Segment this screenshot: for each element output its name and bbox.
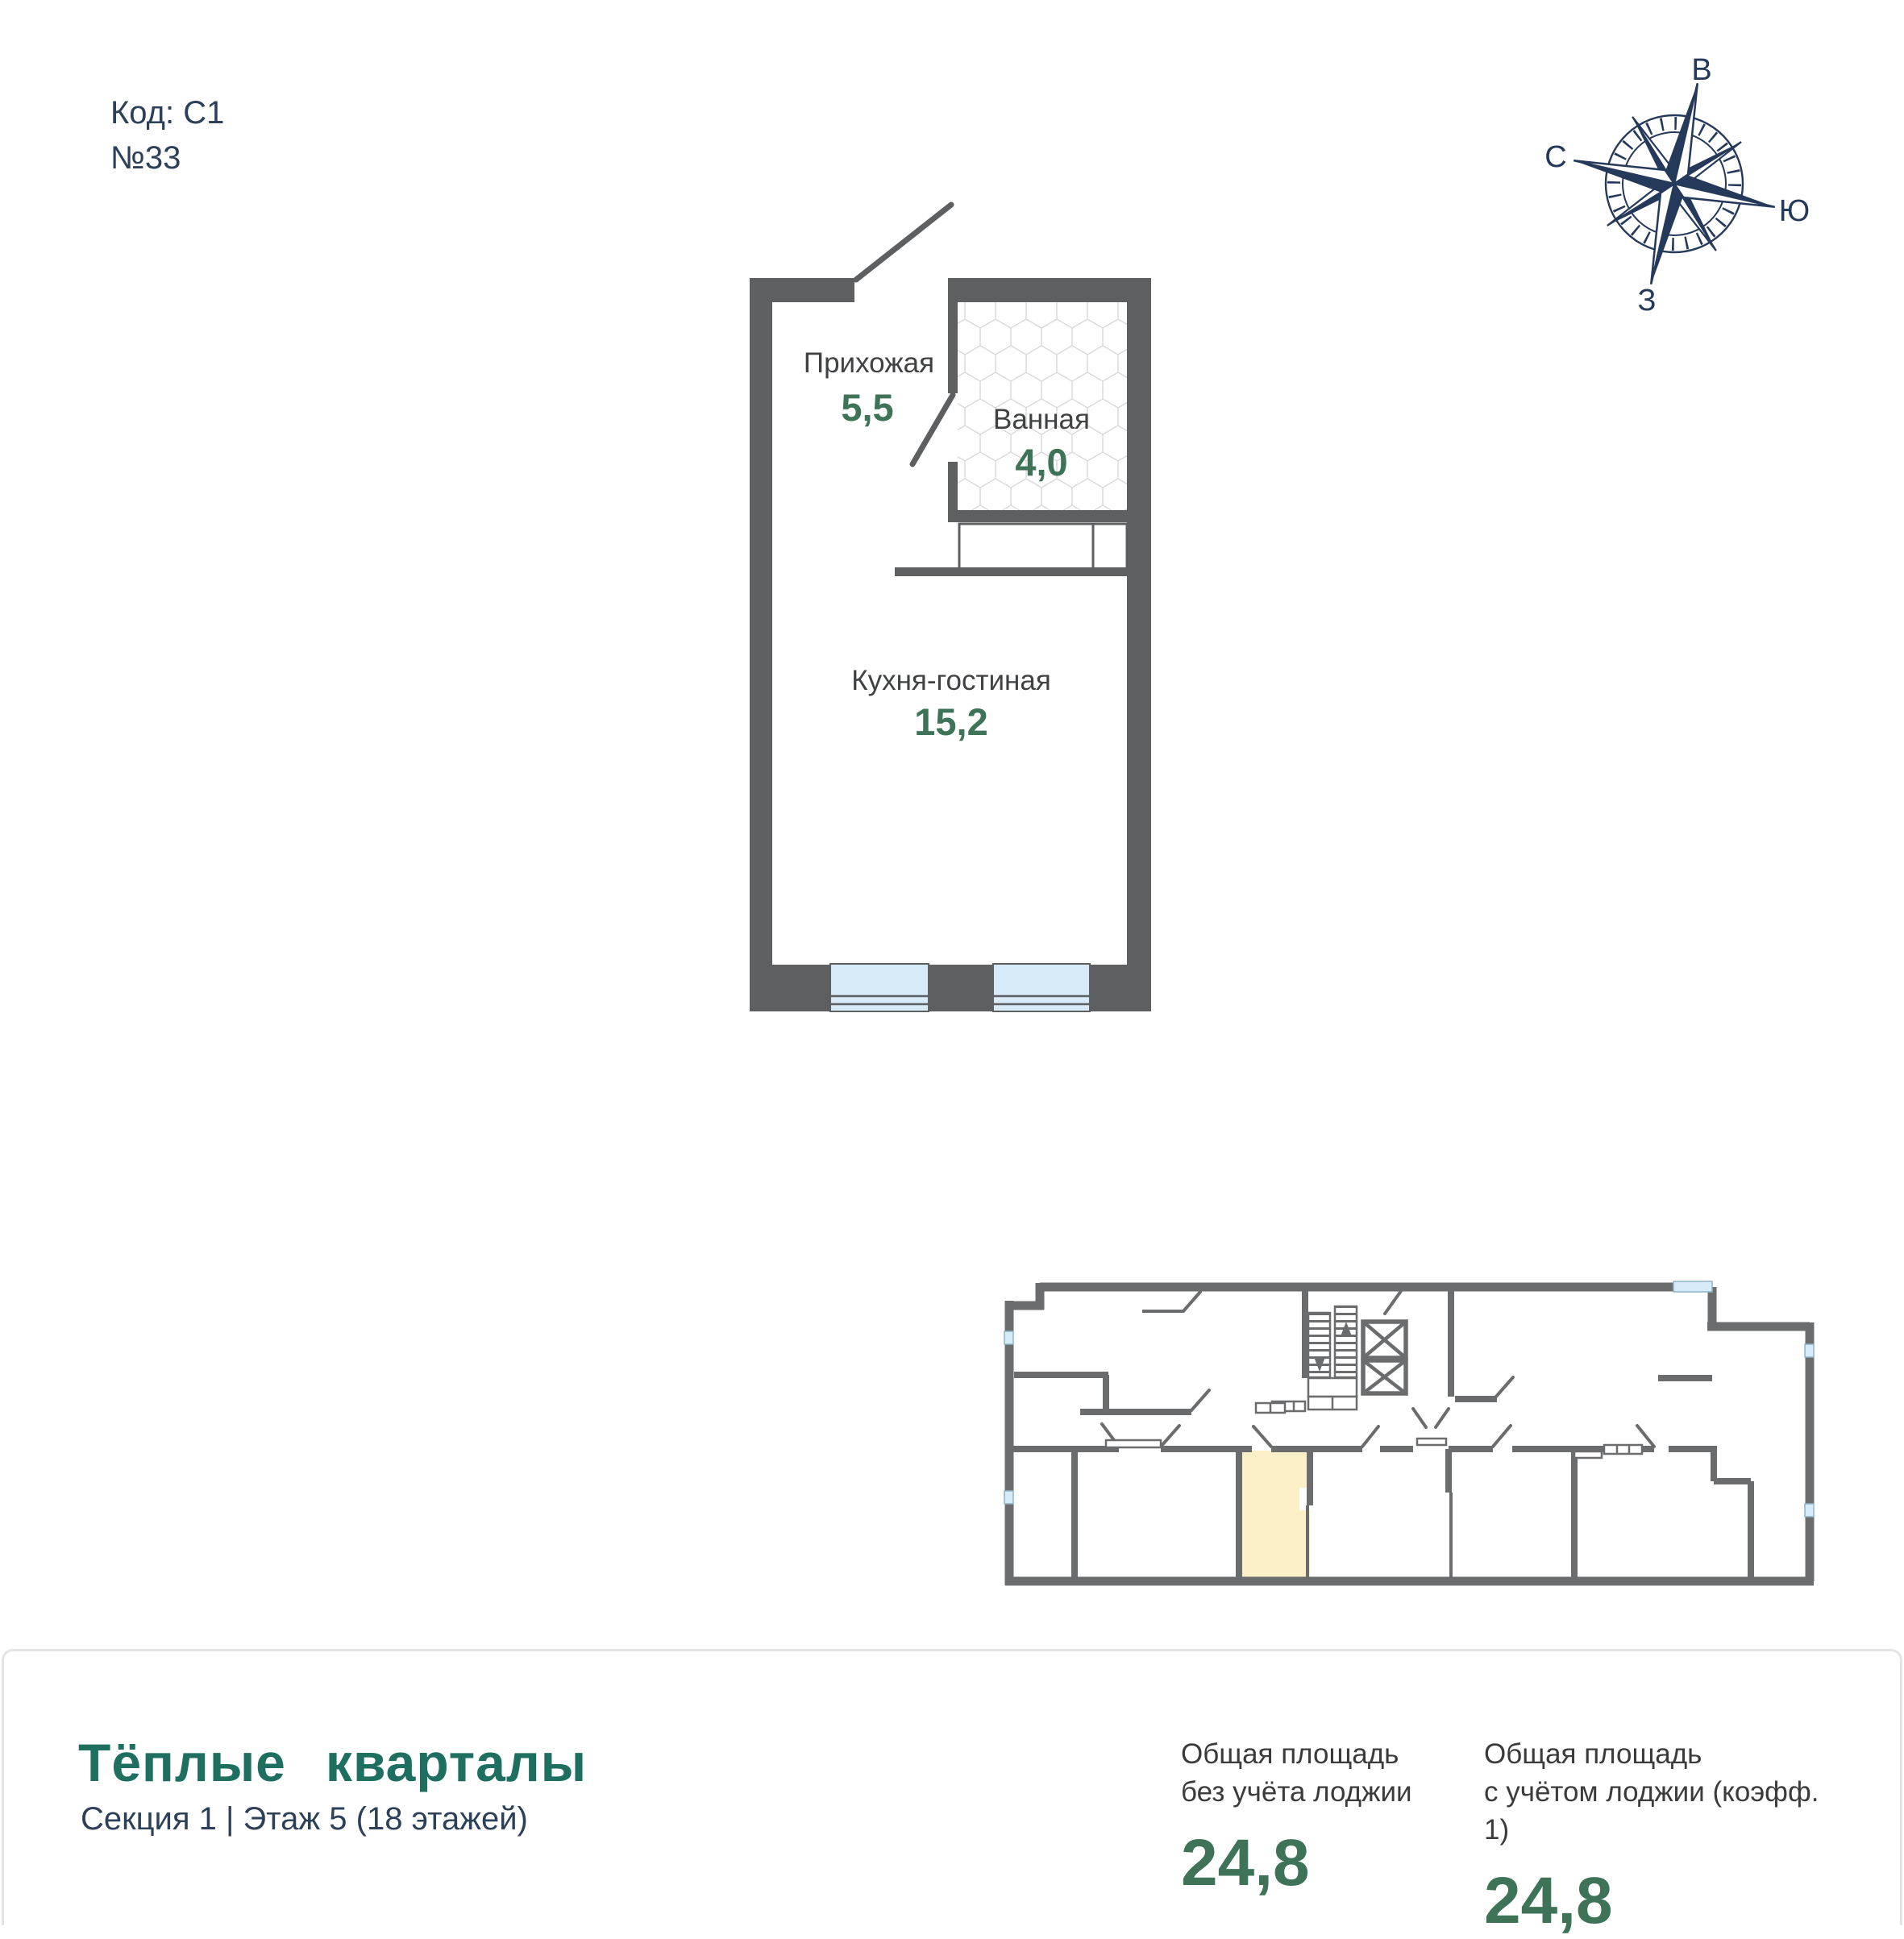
stat-value: 24,8 [1181, 1825, 1519, 1901]
stat-total-area: Общая площадь без учёта лоджии 24,8 [1181, 1735, 1519, 1901]
stat-label-line1: Общая площадь [1484, 1735, 1823, 1773]
window-right [993, 964, 1090, 1011]
overview-windows [1004, 1281, 1814, 1517]
brand-logo: Тёплые кварталы [78, 1732, 587, 1793]
bathroom-door-swing [913, 395, 953, 464]
elevator-shafts [1363, 1322, 1406, 1393]
overview-outer-walls [1005, 1283, 1814, 1585]
shaft-box [959, 524, 1127, 571]
unit-number: №33 [110, 135, 224, 181]
highlighted-unit [1241, 1451, 1310, 1580]
page-root: { "header": { "code": "Код: С1", "unit":… [0, 0, 1904, 1904]
section-floor-label: Секция 1 | Этаж 5 (18 этажей) [81, 1801, 528, 1837]
room-area-hallway: 5,5 [841, 386, 893, 429]
stat-label-line1: Общая площадь [1181, 1735, 1519, 1773]
compass-label-north: С [1544, 140, 1566, 174]
room-area-bathroom: 4,0 [1015, 441, 1067, 484]
compass-needles [1550, 60, 1798, 307]
room-area-kitchen: 15,2 [914, 700, 987, 743]
compass-label-south: Ю [1779, 194, 1810, 228]
compass-label-west: З [1638, 284, 1657, 318]
stat-total-area-with-loggia: Общая площадь с учётом лоджии (коэфф. 1)… [1484, 1735, 1823, 1939]
room-name-hallway: Прихожая [804, 347, 934, 379]
stat-label-line2: с учётом лоджии (коэфф. 1) [1484, 1773, 1823, 1849]
entrance-door-swing [856, 205, 951, 280]
kitchen-partition-wall [895, 567, 1151, 576]
window-left [830, 964, 929, 1011]
footer-panel: Тёплые кварталы Секция 1 | Этаж 5 (18 эт… [2, 1649, 1902, 1925]
unit-code: Код: С1 [110, 90, 224, 135]
apartment-floorplan: Прихожая 5,5 Ванная 4,0 Кухня-гостиная 1… [725, 185, 1177, 1048]
stat-label-line2: без учёта лоджии [1181, 1773, 1519, 1811]
compass-rose: В С Ю З [1524, 32, 1830, 322]
floor-overview [991, 1273, 1862, 1596]
stat-value: 24,8 [1484, 1863, 1823, 1939]
room-name-kitchen: Кухня-гостиная [851, 665, 1051, 696]
stairs-block [1308, 1306, 1357, 1410]
room-name-bathroom: Ванная [993, 404, 1090, 435]
unit-code-block: Код: С1 №33 [110, 90, 224, 181]
compass-label-east: В [1691, 53, 1711, 87]
